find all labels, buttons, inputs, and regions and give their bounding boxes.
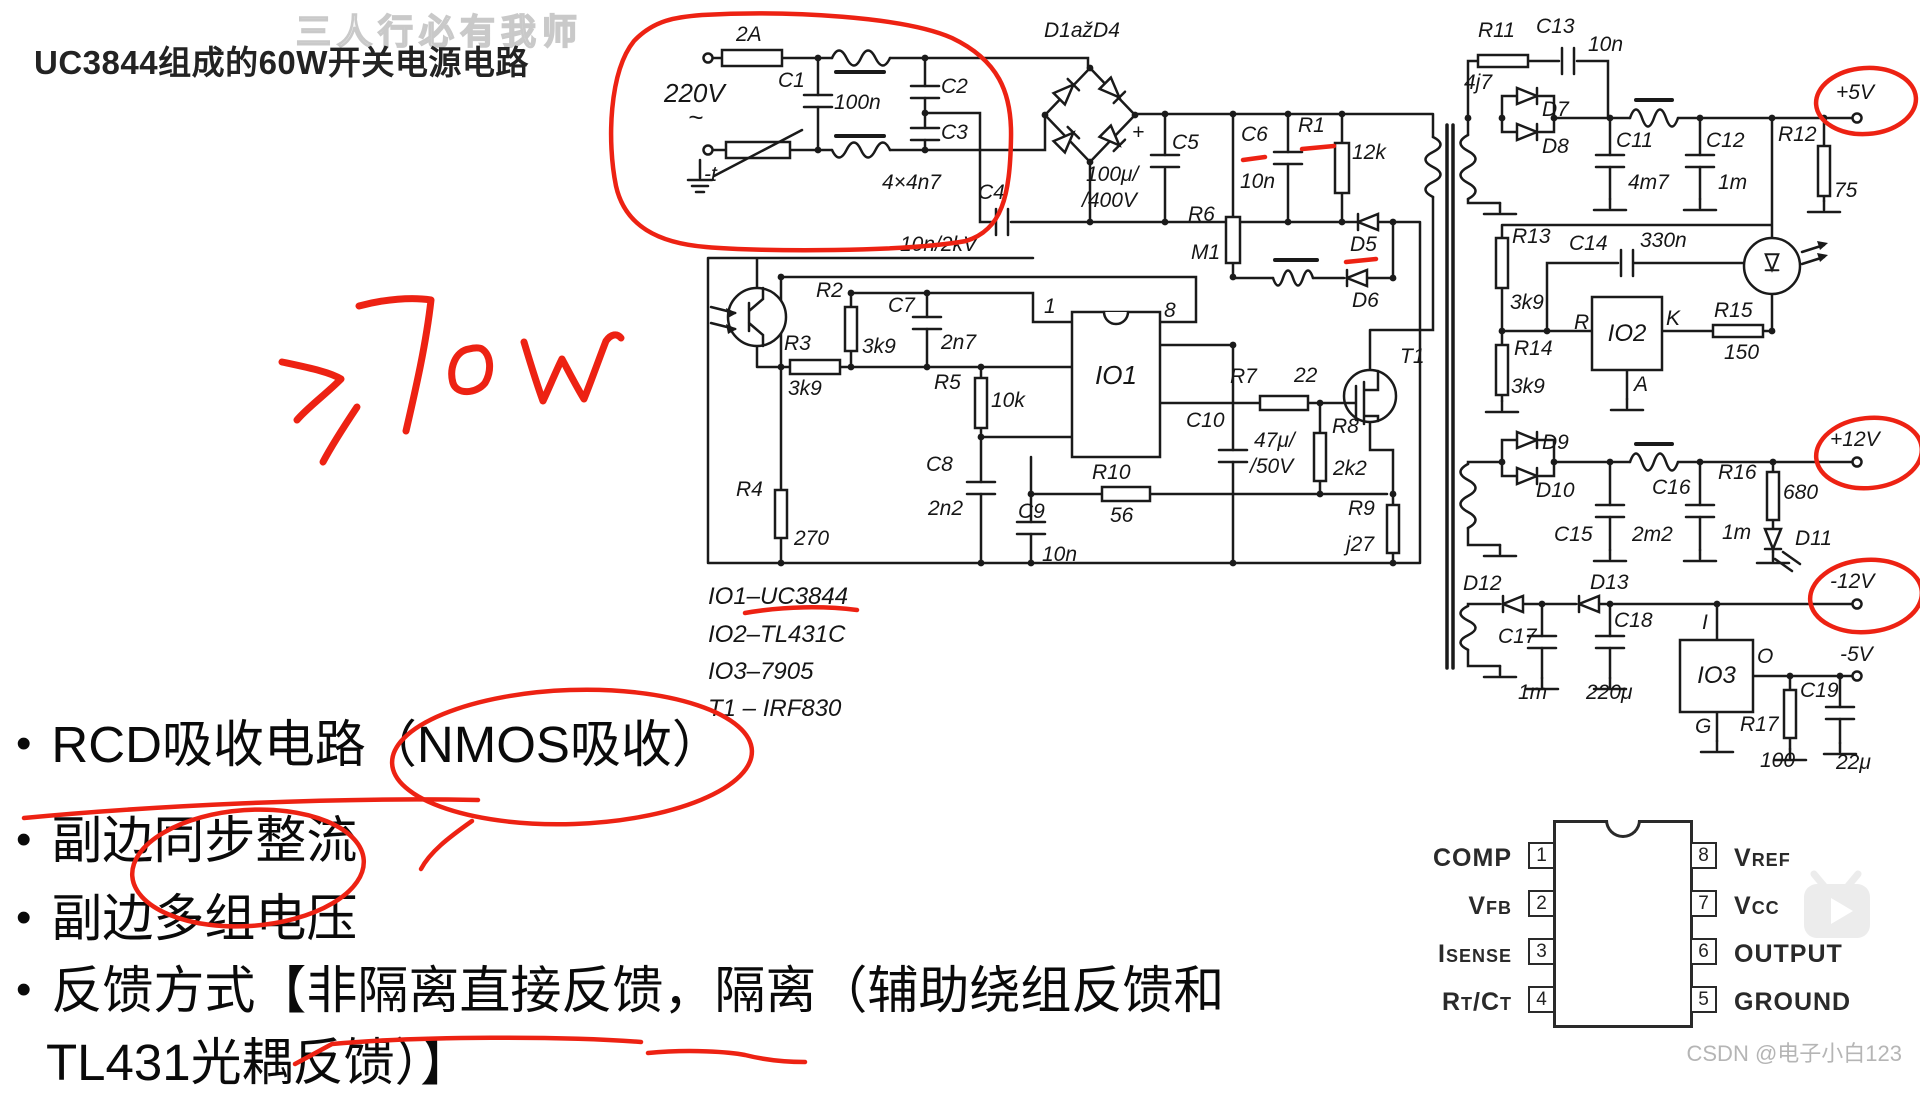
label-d5: D5: [1350, 234, 1377, 255]
label-r2: R2: [816, 280, 843, 301]
label-r15: R15: [1714, 300, 1753, 321]
label-c14: C14: [1569, 233, 1608, 254]
label-cx-value: 4×4n7: [882, 172, 941, 193]
sec12-coil: [1461, 464, 1476, 528]
label-c10: C10: [1186, 410, 1225, 431]
label-pin1: 1: [1044, 296, 1056, 317]
label-c19: C19: [1800, 680, 1839, 701]
label-c5-plus: +: [1132, 122, 1144, 143]
label-d6: D6: [1352, 290, 1379, 311]
bullet-sync-rect: 副边同步整流: [16, 812, 357, 871]
bullet-feedback: 反馈方式【非隔离直接反馈，隔离（辅助绕组反馈和: [16, 962, 1224, 1021]
pin-box-6: 6: [1690, 938, 1717, 965]
ntc-symbol: [726, 142, 790, 158]
pin-label-vfb: VFB: [1356, 892, 1512, 921]
label-r14: R14: [1514, 338, 1553, 359]
label-io1: IO1: [1072, 362, 1160, 388]
label-r13: R13: [1512, 226, 1551, 247]
label-r10: R10: [1092, 462, 1131, 483]
label-r1: R1: [1298, 115, 1325, 136]
label-c6: C6: [1241, 124, 1268, 145]
label-r15-value: 150: [1724, 342, 1759, 363]
label-minus12v: -12V: [1830, 571, 1874, 592]
label-bridge: D1ažD4: [1044, 20, 1120, 41]
label-c7: C7: [888, 295, 915, 316]
label-d10: D10: [1536, 480, 1575, 501]
label-c17: C17: [1498, 626, 1537, 647]
label-c5-value2: /400V: [1082, 190, 1137, 211]
label-r6: R6: [1188, 204, 1215, 225]
label-c6-value: 10n: [1240, 171, 1275, 192]
label-c2: C2: [941, 76, 968, 97]
label-r2-value: 3k9: [862, 336, 896, 357]
label-c8: C8: [926, 454, 953, 475]
csdn-watermark: CSDN @电子小白123: [1687, 1036, 1903, 1068]
label-c10-value1: 47μ/: [1254, 430, 1295, 451]
label-r16-value: 680: [1783, 482, 1818, 503]
label-r5-value: 10k: [991, 390, 1025, 411]
label-r4-value: 270: [794, 528, 829, 549]
legend-io2: IO2–TL431C: [708, 621, 845, 649]
page-title: UC3844组成的60W开关电源电路: [34, 36, 529, 84]
label-c5-value1: 100μ/: [1086, 164, 1138, 185]
label-r11-value: 4j7: [1464, 72, 1492, 93]
pin-box-7: 7: [1690, 890, 1717, 917]
legend-io1: IO1–UC3844: [708, 583, 848, 611]
label-c15-value: 2m2: [1632, 524, 1673, 545]
sec5-coil: [1461, 135, 1476, 199]
label-c16-value: 1m: [1722, 522, 1751, 543]
label-c13: C13: [1536, 16, 1575, 37]
label-r6-value: M1: [1191, 242, 1220, 263]
label-io3-g: G: [1695, 716, 1711, 737]
label-r9: R9: [1348, 498, 1375, 519]
pin-box-4: 4: [1528, 986, 1555, 1013]
legend-io3: IO3–7905: [708, 658, 813, 686]
label-fuse: 2A: [736, 24, 762, 45]
label-c19-value: 22μ: [1836, 752, 1871, 773]
transformer-core: [1447, 125, 1453, 668]
label-c12-value: 1m: [1718, 172, 1747, 193]
label-c18: C18: [1614, 610, 1653, 631]
label-c5: C5: [1172, 132, 1199, 153]
video-play-icon[interactable]: [1798, 868, 1878, 948]
label-c4: C4: [978, 182, 1005, 203]
label-c7-value: 2n7: [941, 332, 976, 353]
label-c11: C11: [1616, 130, 1653, 151]
aux-winding: [1273, 271, 1313, 286]
label-c1: C1: [778, 70, 805, 91]
label-io2: IO2: [1592, 322, 1662, 346]
label-r3-value: 3k9: [788, 378, 822, 399]
label-c18-value: 220μ: [1586, 682, 1633, 703]
label-io2-a: A: [1634, 374, 1648, 395]
label-r16: R16: [1718, 462, 1757, 483]
label-r7-value: 22: [1294, 365, 1317, 386]
label-c9-value: 10n: [1042, 544, 1077, 565]
label-plus5v: +5V: [1836, 82, 1874, 103]
label-c17-value: 1m: [1518, 682, 1547, 703]
primary-coil: [1426, 137, 1441, 197]
label-d11: D11: [1795, 528, 1832, 549]
label-r8: R8: [1332, 416, 1359, 437]
label-r9-value: j27: [1346, 534, 1374, 555]
label-r13-value: 3k9: [1510, 292, 1544, 313]
label-c4-value: 10n/2kV: [900, 234, 977, 255]
label-r14-value: 3k9: [1511, 376, 1545, 397]
legend-t1: T1 – IRF830: [708, 695, 841, 723]
label-r12-value: 75: [1834, 180, 1857, 201]
pin-box-3: 3: [1528, 938, 1555, 965]
label-ntc: -t: [704, 164, 717, 185]
label-c9: C9: [1018, 501, 1045, 522]
label-io2-r: R: [1574, 312, 1589, 333]
label-r5: R5: [934, 372, 961, 393]
label-d12: D12: [1463, 573, 1502, 594]
label-c1-value: 100n: [834, 92, 881, 113]
pin-box-8: 8: [1690, 842, 1717, 869]
pin-box-1: 1: [1528, 842, 1555, 869]
bullet-rcd: RCD吸收电路（NMOS吸收）: [16, 716, 723, 775]
label-io2-k: K: [1666, 308, 1680, 329]
label-pin8: 8: [1164, 300, 1176, 321]
label-plus12v: +12V: [1830, 429, 1880, 450]
fuse-symbol: [722, 50, 782, 66]
label-d8: D8: [1542, 136, 1569, 157]
label-r17-value: 100: [1760, 750, 1795, 771]
pin-box-2: 2: [1528, 890, 1555, 917]
label-d9: D9: [1542, 432, 1569, 453]
bullet-multi-voltage: 副边多组电压: [16, 890, 357, 949]
label-ac-symbol: ~: [688, 104, 703, 130]
label-d13: D13: [1590, 572, 1629, 593]
label-c15: C15: [1554, 524, 1593, 545]
label-r8-value: 2k2: [1333, 458, 1367, 479]
label-r3: R3: [784, 333, 811, 354]
label-r11: R11: [1478, 20, 1515, 41]
label-r12: R12: [1778, 124, 1817, 145]
pin-label-rtct: RT/CT: [1356, 988, 1512, 1017]
label-r17: R17: [1740, 714, 1779, 735]
label-io3: IO3: [1680, 664, 1753, 688]
optocoupler-transistor-icon: [728, 288, 786, 346]
label-c16: C16: [1652, 477, 1691, 498]
bullet-feedback-line2: TL431光耦反馈）】: [46, 1034, 471, 1093]
label-minus5v: -5V: [1840, 644, 1873, 665]
secn12-coil: [1461, 606, 1476, 650]
label-c10-value2: /50V: [1250, 456, 1293, 477]
label-c14-value: 330n: [1640, 230, 1687, 251]
page: { "header": { "watermark": "三人行必有我师", "t…: [0, 0, 1920, 1080]
label-r10-value: 56: [1110, 505, 1133, 526]
pin-label-isense: ISENSE: [1356, 940, 1512, 969]
dip-notch-icon: [1605, 820, 1641, 838]
bridge-rectifier: [1045, 68, 1135, 162]
label-c12: C12: [1706, 130, 1745, 151]
pin-box-5: 5: [1690, 986, 1717, 1013]
label-c3: C3: [941, 122, 968, 143]
label-c8-value: 2n2: [928, 498, 963, 519]
label-r1-value: 12k: [1352, 142, 1386, 163]
label-d7: D7: [1542, 99, 1569, 120]
label-c11-value: 4m7: [1628, 172, 1669, 193]
pin-label-ground: GROUND: [1734, 988, 1920, 1017]
label-r4: R4: [736, 479, 763, 500]
label-io3-i: I: [1702, 612, 1708, 633]
uc3844-dip-body: [1553, 820, 1693, 1028]
label-r7: R7: [1230, 366, 1257, 387]
pin-label-comp: COMP: [1356, 844, 1512, 873]
label-io3-o: O: [1757, 646, 1773, 667]
label-t1: T1: [1400, 346, 1425, 367]
label-c13-value: 10n: [1588, 34, 1623, 55]
